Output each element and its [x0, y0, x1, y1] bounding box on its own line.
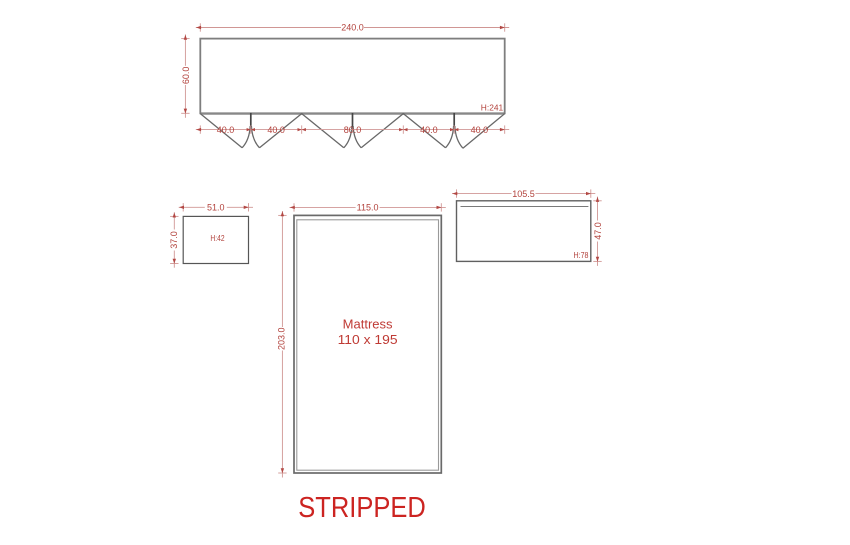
- svg-text:H:241: H:241: [481, 103, 504, 113]
- svg-text:240.0: 240.0: [341, 23, 364, 33]
- svg-text:Mattress: Mattress: [343, 317, 393, 332]
- svg-text:110 x 195: 110 x 195: [338, 332, 398, 347]
- svg-text:40.0: 40.0: [267, 125, 285, 135]
- svg-text:37.0: 37.0: [169, 231, 179, 249]
- svg-text:105.5: 105.5: [512, 189, 535, 199]
- svg-text:H:42: H:42: [210, 233, 224, 243]
- svg-text:51.0: 51.0: [207, 203, 225, 213]
- svg-text:203.0: 203.0: [277, 327, 287, 350]
- svg-text:H:78: H:78: [574, 250, 589, 260]
- svg-text:47.0: 47.0: [593, 222, 603, 240]
- svg-text:40.0: 40.0: [471, 125, 489, 135]
- svg-text:40.0: 40.0: [420, 125, 438, 135]
- svg-text:80.0: 80.0: [344, 125, 362, 135]
- svg-text:115.0: 115.0: [357, 203, 379, 213]
- svg-text:40.0: 40.0: [217, 125, 235, 135]
- svg-text:STRIPPED: STRIPPED: [298, 492, 426, 524]
- svg-text:60.0: 60.0: [181, 67, 191, 85]
